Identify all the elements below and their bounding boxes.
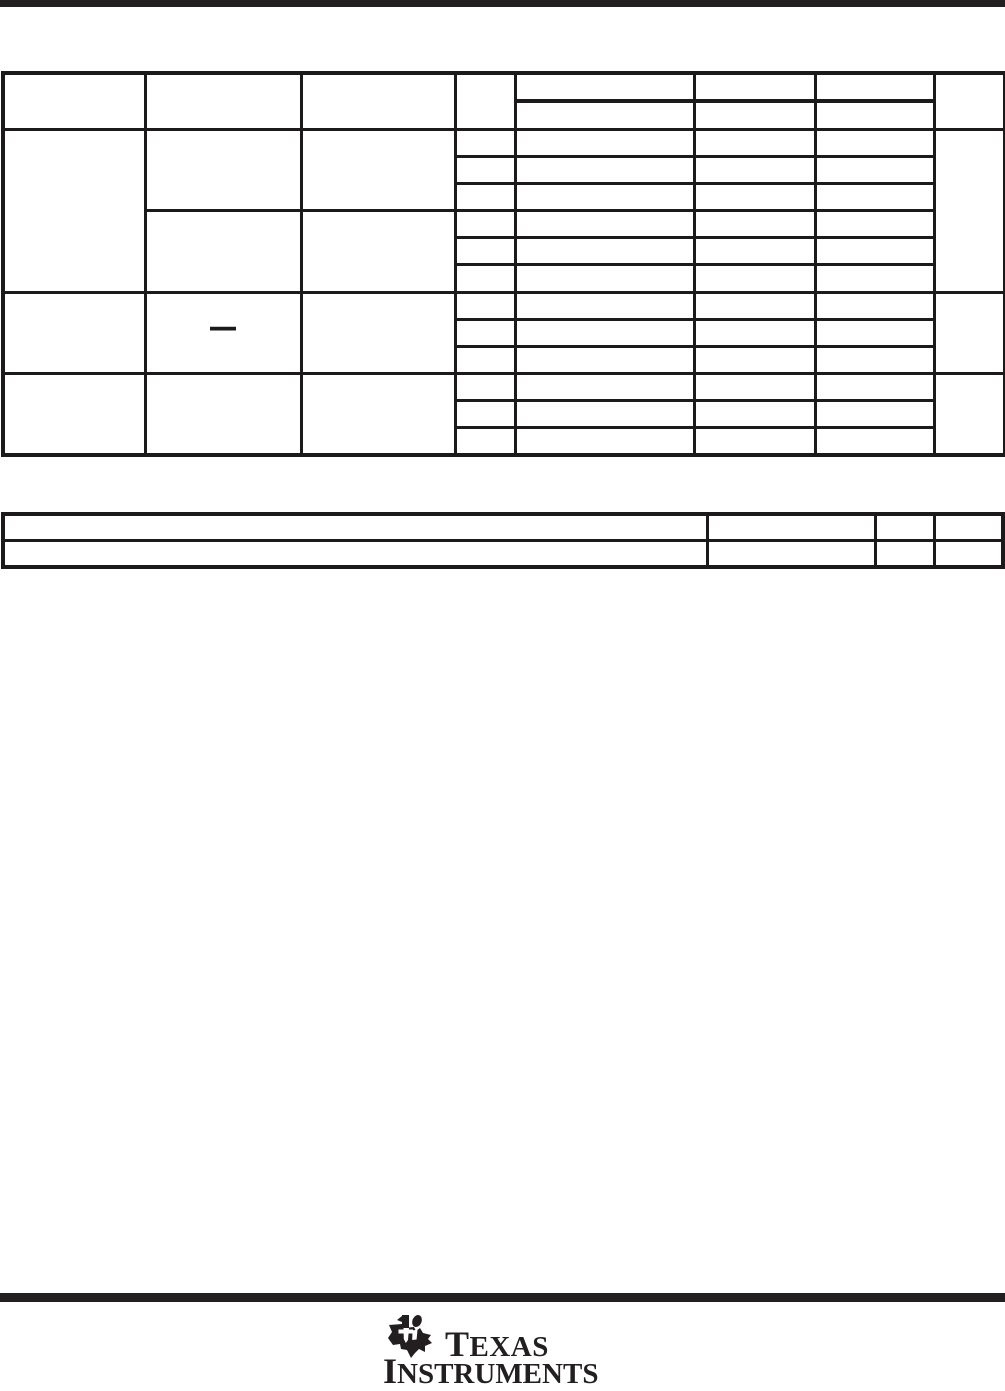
ti-logo-instruments: INSTRUMENTS: [383, 1353, 598, 1389]
table-cell: [815, 292, 934, 319]
table-cell: [515, 129, 694, 156]
table-cell: [815, 237, 934, 264]
table-cell: [455, 210, 515, 237]
table-cell: [875, 540, 934, 567]
table-cell: [455, 427, 515, 455]
table-cell: [3, 73, 145, 129]
table-cell: [707, 540, 875, 567]
table-cell: [3, 373, 145, 455]
table-cell: [3, 540, 707, 567]
table-cell: [515, 400, 694, 427]
table-cell: [145, 210, 301, 292]
ti-logo: TEXAS INSTRUMENTS: [382, 1310, 622, 1385]
table-cell: [694, 73, 815, 101]
table-cell: [694, 129, 815, 156]
table-cell: [301, 210, 455, 292]
table-cell: [815, 210, 934, 237]
table-cell: [455, 156, 515, 183]
table-cell: [455, 237, 515, 264]
table-cell: [455, 183, 515, 210]
table-cell: [455, 264, 515, 292]
table-cell: [815, 156, 934, 183]
table-cell: [301, 373, 455, 455]
table-cell: [707, 514, 875, 540]
table-cell: [455, 319, 515, 346]
table-cell: [875, 514, 934, 540]
table-cell: [934, 373, 1005, 455]
table-cell: [694, 264, 815, 292]
table-cell: [145, 129, 301, 210]
table-cell: [815, 346, 934, 373]
table-cell: [694, 427, 815, 455]
table-cell: [694, 183, 815, 210]
table-cell: [815, 183, 934, 210]
table-cell: [694, 373, 815, 400]
bottom-rule: [0, 1293, 1005, 1302]
table-cell: [934, 73, 1005, 129]
table-cell: [694, 400, 815, 427]
datasheet-page: { "page": { "background": "#ffffff", "ru…: [0, 0, 1005, 1385]
top-rule: [0, 0, 1005, 7]
table-cell: [815, 129, 934, 156]
table-cell: [694, 156, 815, 183]
table-cell: [815, 427, 934, 455]
table-cell: [515, 156, 694, 183]
table-cell: [515, 183, 694, 210]
table-cell: [455, 292, 515, 319]
table-cell: [515, 73, 694, 101]
table-cell: [301, 129, 455, 210]
table-cell: [301, 73, 455, 129]
table-cell: [515, 292, 694, 319]
table-cell: [3, 514, 707, 540]
table-cell: [455, 400, 515, 427]
table-cell: [515, 210, 694, 237]
table-cell: [515, 346, 694, 373]
table-cell: [694, 101, 815, 129]
table-cell: [815, 319, 934, 346]
table-cell: [815, 73, 934, 101]
table-cell: [694, 319, 815, 346]
table-cell: [815, 373, 934, 400]
table-cell: [3, 292, 145, 373]
table-cell: [515, 427, 694, 455]
table-cell: [694, 292, 815, 319]
table-cell: [455, 373, 515, 400]
main-table: —: [1, 71, 1005, 457]
table-cell: [455, 346, 515, 373]
table-cell: [301, 292, 455, 373]
table-cell: [455, 73, 515, 129]
table-cell: [515, 373, 694, 400]
table-cell: [934, 514, 1003, 540]
table-cell: [694, 237, 815, 264]
table-cell: [934, 540, 1003, 567]
table-cell: [815, 101, 934, 129]
table-cell: [694, 346, 815, 373]
table-cell: [815, 264, 934, 292]
table-cell: [815, 400, 934, 427]
table-cell: [455, 129, 515, 156]
table-cell: [694, 210, 815, 237]
table-cell: [515, 264, 694, 292]
table-cell: [145, 73, 301, 129]
table-cell: [515, 101, 694, 129]
table-cell: [145, 373, 301, 455]
dash-cell: —: [145, 292, 301, 373]
table-cell: [934, 129, 1005, 292]
table-cell: [515, 319, 694, 346]
secondary-table: [1, 512, 1005, 569]
table-cell: [3, 129, 145, 292]
table-cell: [934, 292, 1005, 373]
table-cell: [515, 237, 694, 264]
